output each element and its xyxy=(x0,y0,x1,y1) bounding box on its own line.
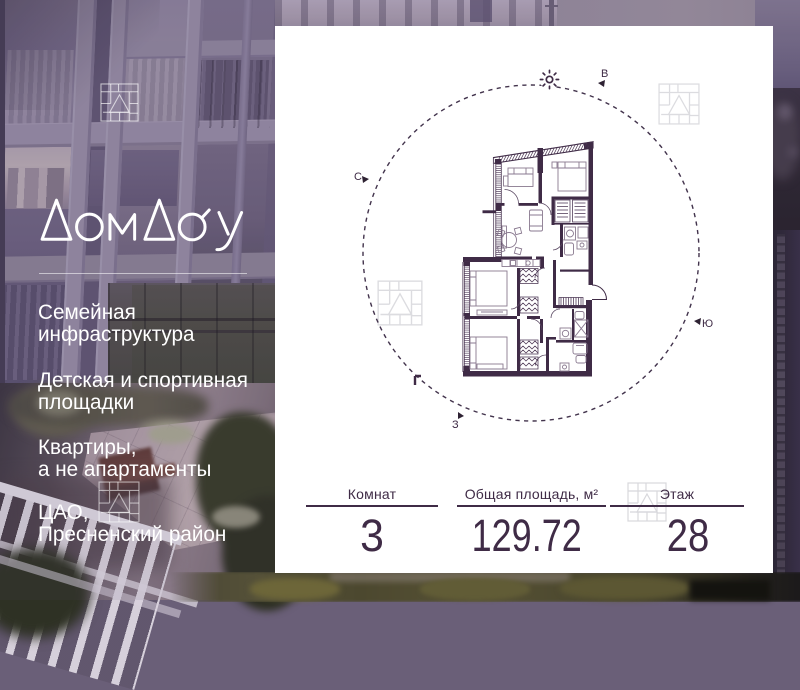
svg-text:В: В xyxy=(601,68,608,80)
svg-text:З: З xyxy=(452,419,459,431)
svg-text:Ю: Ю xyxy=(702,318,713,330)
svg-text:С: С xyxy=(354,171,362,183)
